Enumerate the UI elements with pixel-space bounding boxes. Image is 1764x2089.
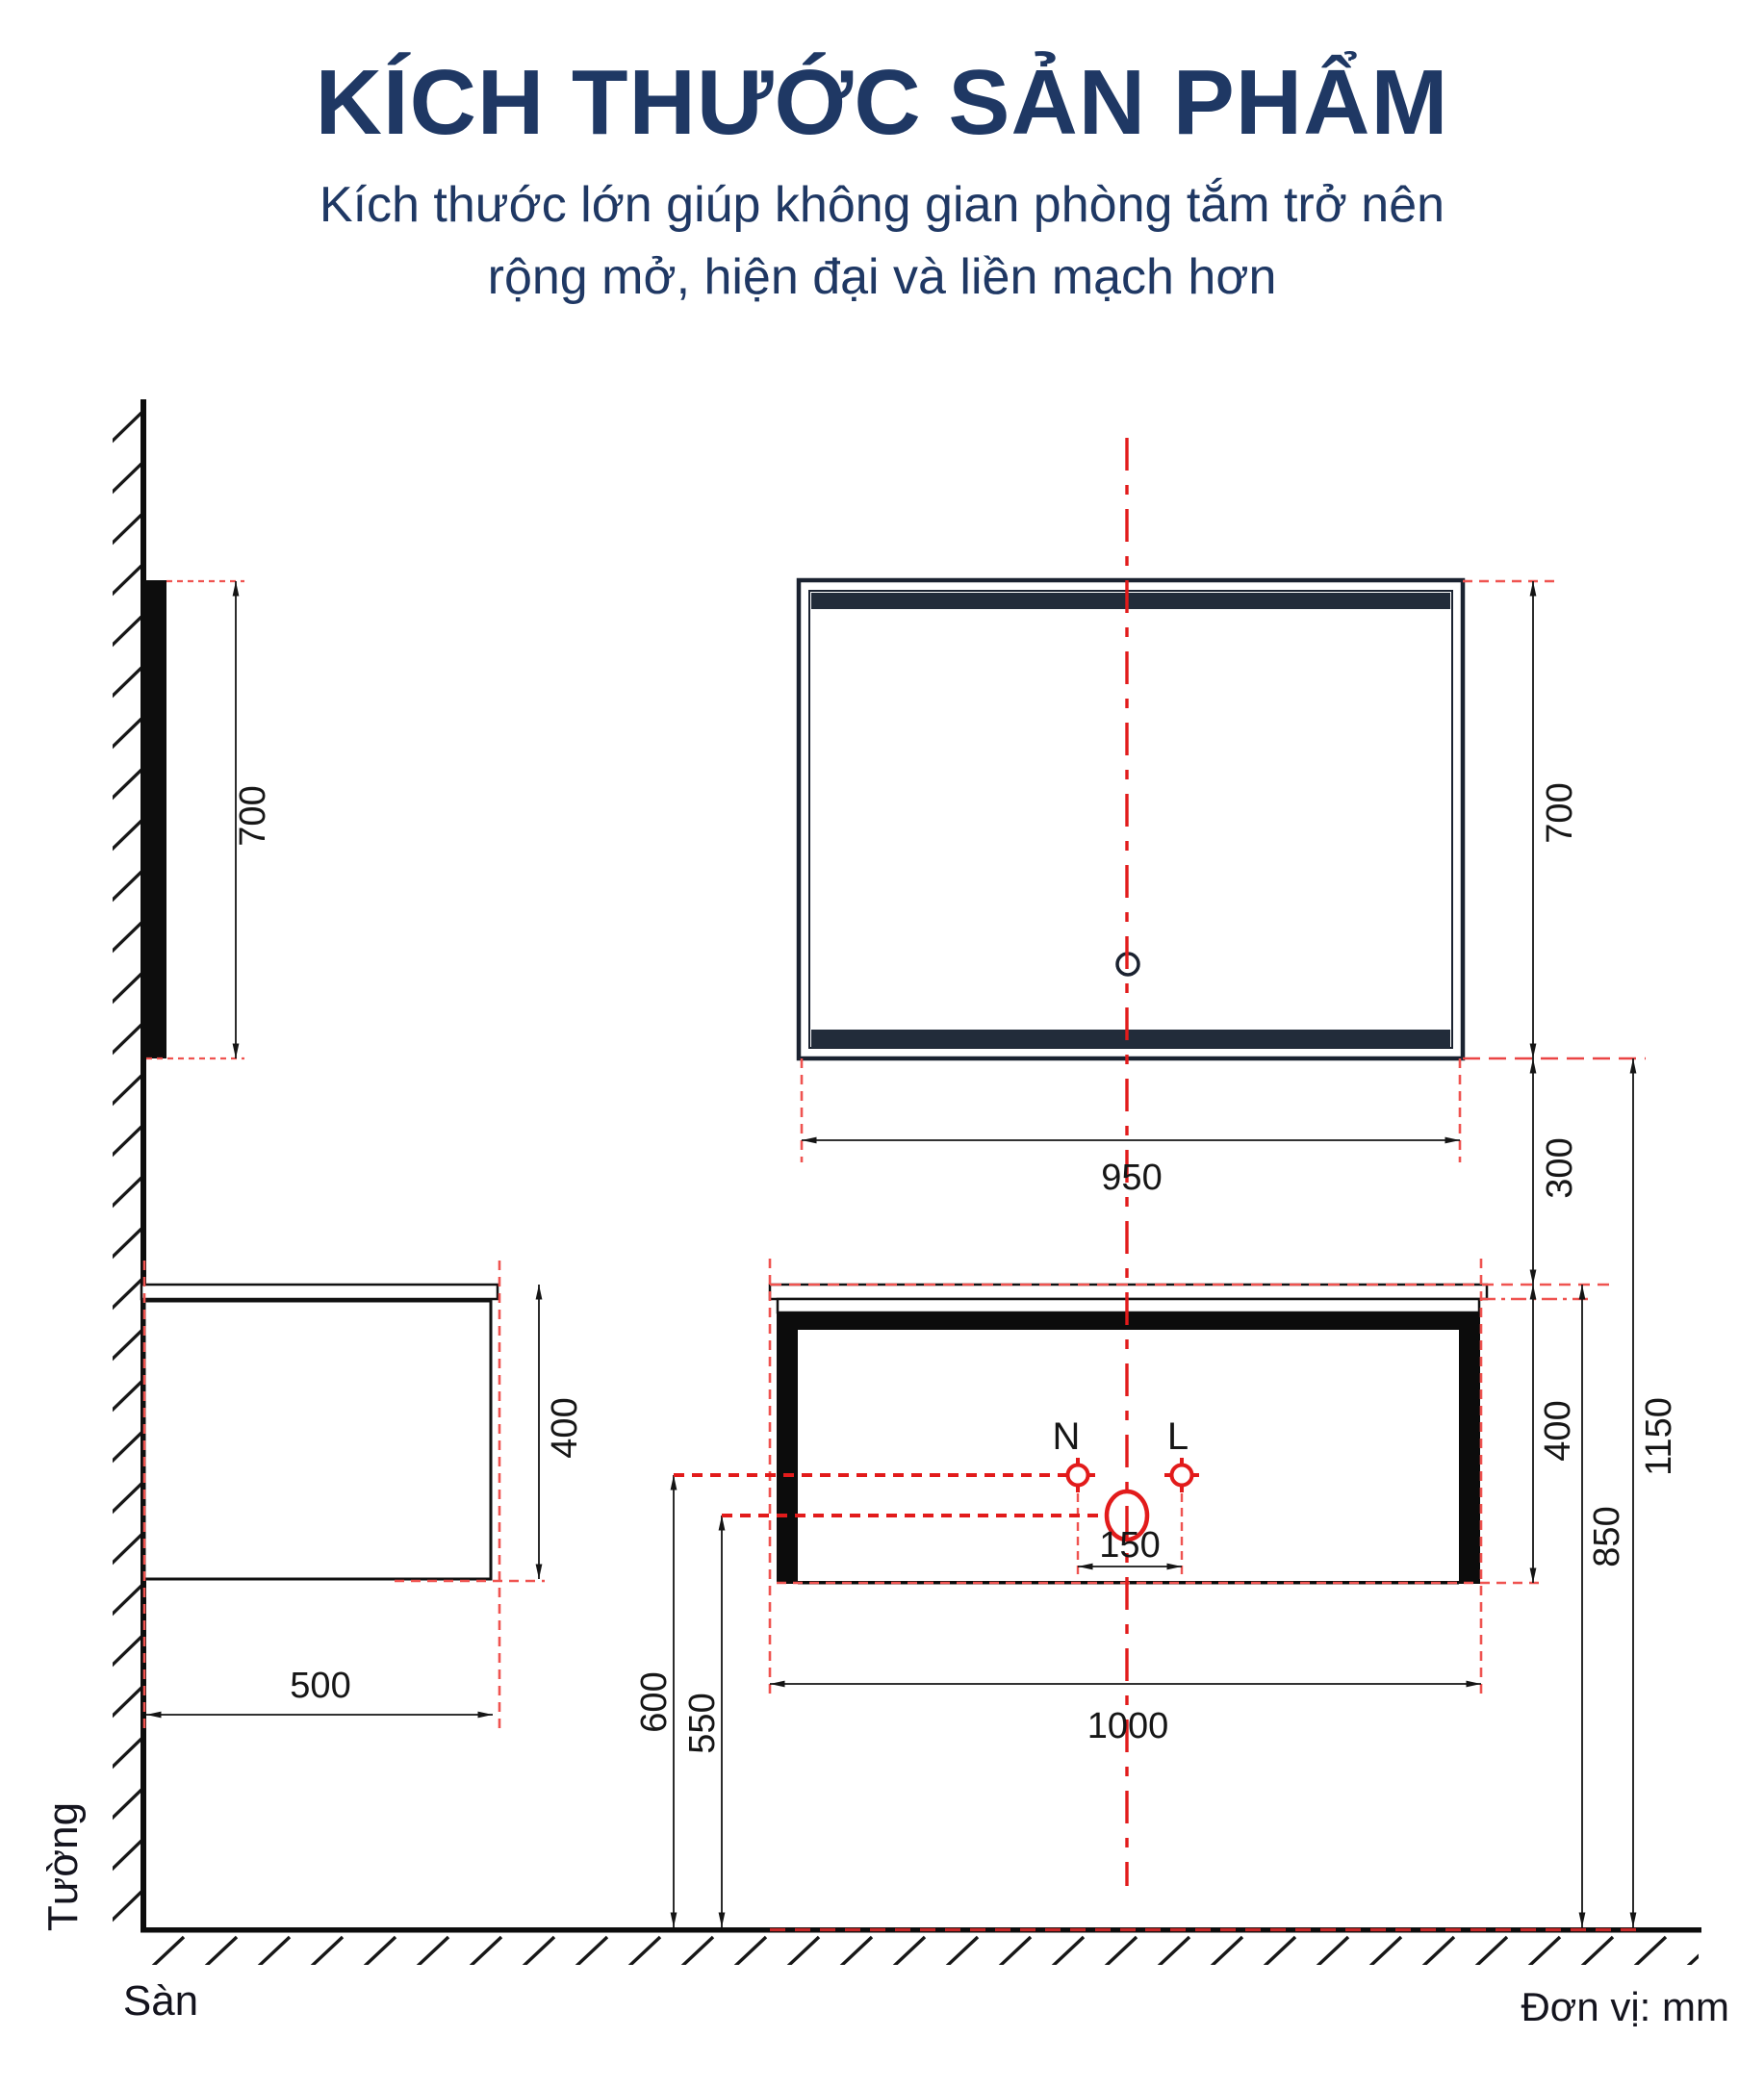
dim-supply-height: 600 xyxy=(634,1671,675,1732)
mirror-side-view xyxy=(141,580,166,1058)
dim-mirror-width: 950 xyxy=(1101,1158,1162,1198)
floor-hatching xyxy=(144,1932,1699,1965)
unit-note: Đơn vị: mm xyxy=(1521,1984,1729,2029)
mirror-front-view xyxy=(799,580,1463,1058)
dim-cabinet-depth: 500 xyxy=(290,1666,350,1706)
dim-mirror-height-side: 700 xyxy=(233,785,273,846)
label-neutral: N xyxy=(1053,1415,1081,1458)
cabinet-right-panel xyxy=(1459,1312,1480,1584)
technical-drawing: 700 700 300 400 850 1150 950 1000 150 40… xyxy=(0,0,1764,2089)
dim-mirror-bottom-height: 1150 xyxy=(1639,1397,1679,1476)
cabinet-side-countertop xyxy=(141,1285,498,1299)
cabinet-left-panel xyxy=(777,1312,798,1584)
wall-hatching xyxy=(113,399,141,1927)
dim-cabinet-height-side: 400 xyxy=(545,1397,585,1458)
dim-countertop-height: 850 xyxy=(1587,1506,1627,1567)
label-live: L xyxy=(1167,1415,1189,1458)
dim-gap-300: 300 xyxy=(1540,1137,1580,1198)
label-wall: Tường xyxy=(39,1802,87,1931)
cabinet-side-body xyxy=(144,1301,491,1579)
dim-cabinet-height-front: 400 xyxy=(1538,1400,1578,1461)
mirror-led-strip-bottom xyxy=(811,1030,1450,1048)
dim-cabinet-width: 1000 xyxy=(1087,1706,1169,1746)
dim-drain-height: 550 xyxy=(682,1693,723,1753)
dim-mirror-height-front: 700 xyxy=(1540,782,1580,843)
dim-faucet-spacing: 150 xyxy=(1099,1525,1160,1566)
mirror-led-strip-top xyxy=(811,593,1450,609)
label-floor: Sàn xyxy=(123,1977,198,2025)
dimension-sheet: KÍCH THƯỚC SẢN PHẨM Kích thước lớn giúp … xyxy=(0,0,1764,2089)
mirror-outer-frame xyxy=(799,580,1463,1058)
